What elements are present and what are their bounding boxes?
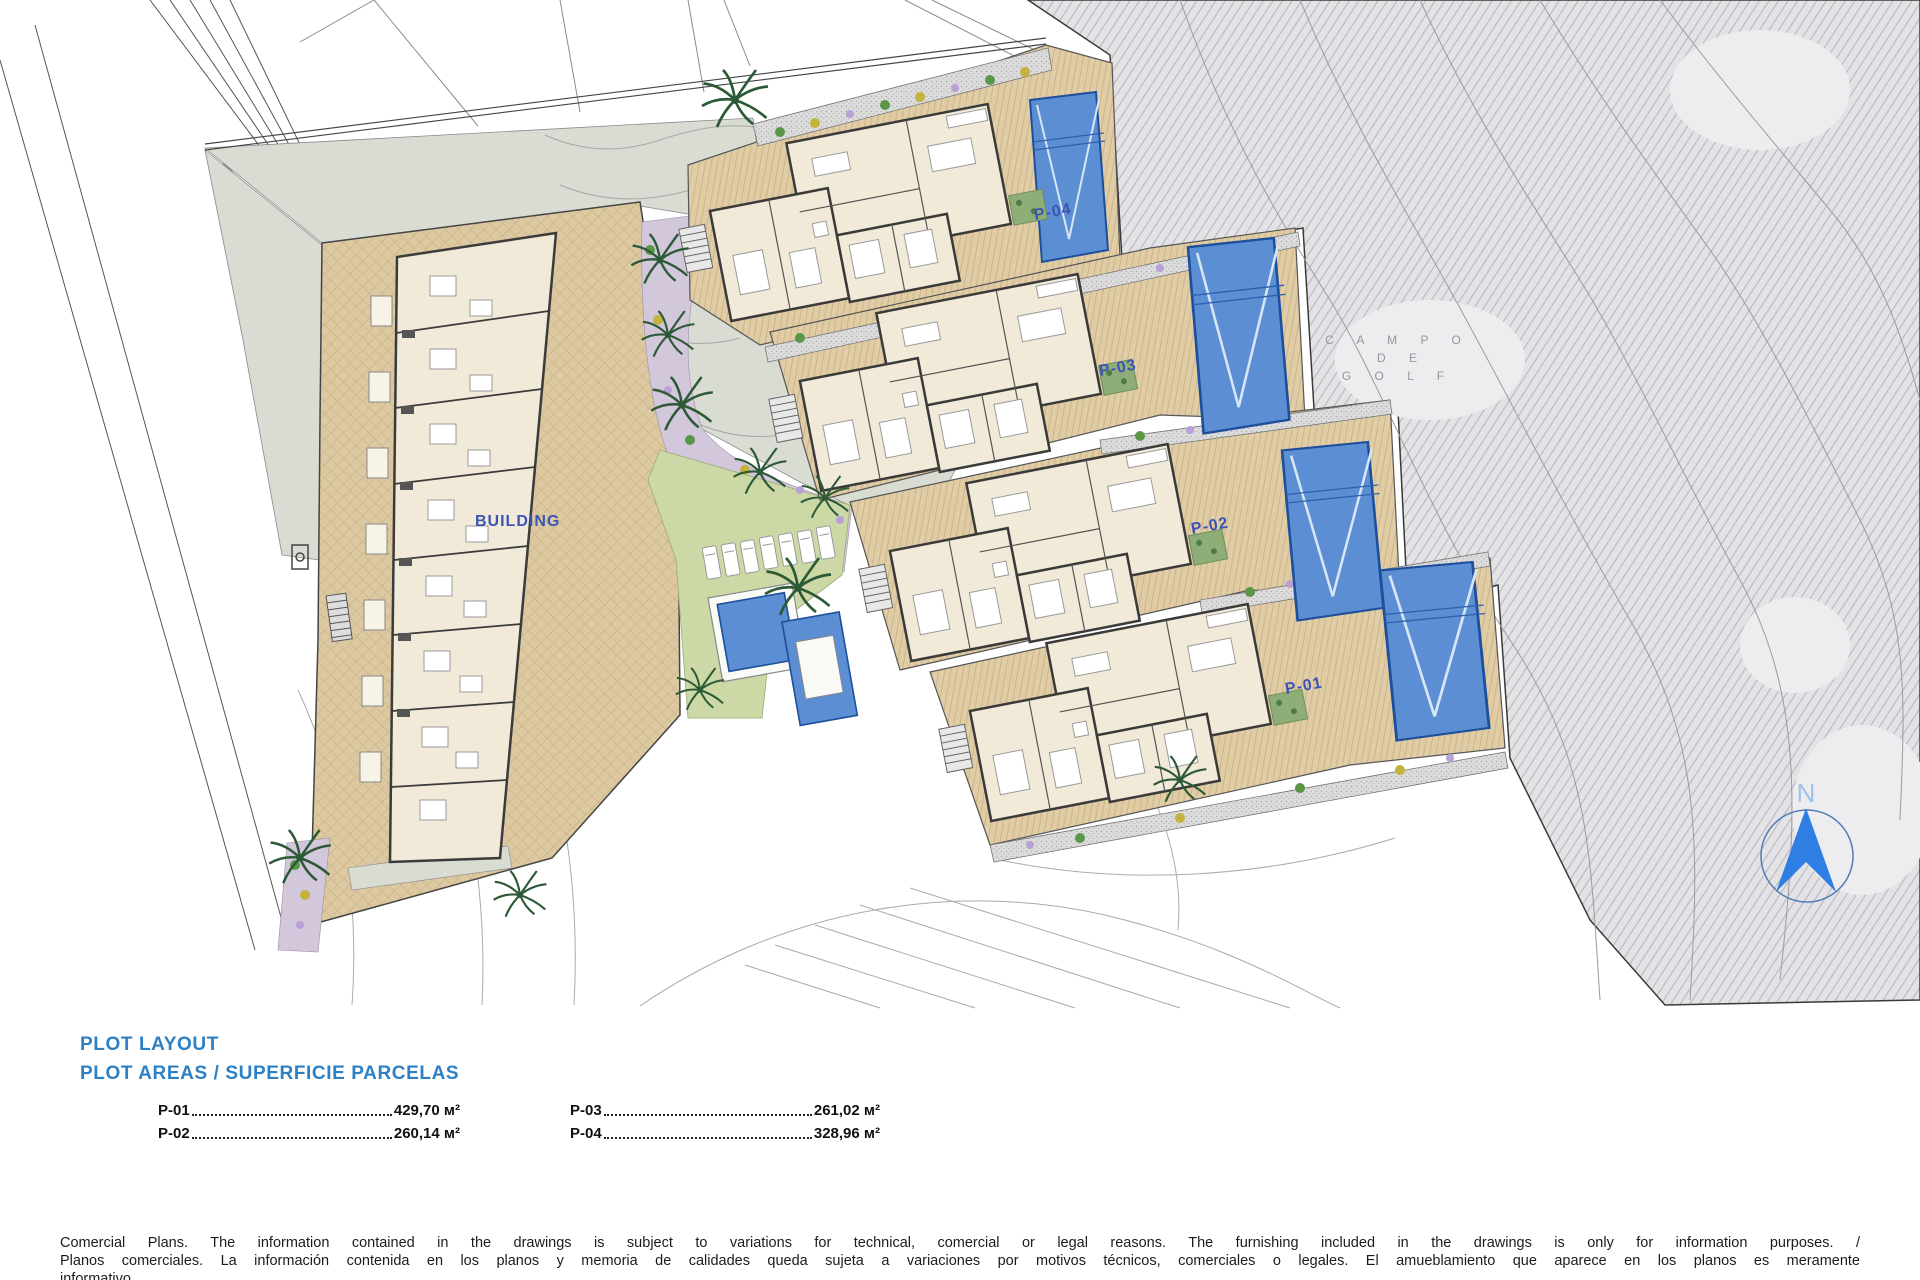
plot-area-value: 429,70 м² (394, 1102, 460, 1119)
page: C A M P O D E G O L F (0, 0, 1920, 1280)
disclaimer-line-es: Planos comerciales. La información conte… (60, 1252, 1860, 1270)
plot-area-row-p01: P-01 429,70 м² (158, 1102, 460, 1119)
plot-areas-title: PLOT AREAS / SUPERFICIE PARCELAS (80, 1059, 880, 1088)
plot-area-row-p03: P-03 261,02 м² (570, 1102, 880, 1119)
building-parcel (292, 202, 680, 925)
disclaimer-line-en: Comercial Plans. The information contain… (60, 1234, 1860, 1252)
site-plan: C A M P O D E G O L F (0, 0, 1920, 1010)
plot-area-name: P-03 (570, 1102, 602, 1119)
plot-area-row-p04: P-04 328,96 м² (570, 1125, 880, 1142)
plot-areas-table: P-01 429,70 м² P-02 260,14 м² P-03 261,0… (158, 1102, 880, 1142)
plot-area-value: 328,96 м² (814, 1125, 880, 1142)
plot-area-row-p02: P-02 260,14 м² (158, 1125, 460, 1142)
plot-legend: PLOT LAYOUT PLOT AREAS / SUPERFICIE PARC… (80, 1030, 880, 1142)
plot-area-value: 261,02 м² (814, 1102, 880, 1119)
north-label: N (1797, 778, 1816, 808)
golf-label-line2: D E (1377, 351, 1427, 365)
golf-label-line3: G O L F (1342, 369, 1454, 383)
disclaimer-line-3: informativo. (60, 1270, 1860, 1280)
communal-pool-2 (782, 612, 857, 725)
dotted-leader (604, 1137, 812, 1139)
plot-layout-title: PLOT LAYOUT (80, 1030, 880, 1059)
disclaimer: Comercial Plans. The information contain… (60, 1234, 1860, 1280)
plot-area-name: P-04 (570, 1125, 602, 1142)
plot-area-value: 260,14 м² (394, 1125, 460, 1142)
dotted-leader (604, 1114, 812, 1116)
building-label: BUILDING (475, 513, 560, 530)
plot-area-name: P-01 (158, 1102, 190, 1119)
golf-label-line1: C A M P O (1325, 333, 1471, 347)
dotted-leader (192, 1114, 392, 1116)
plot-area-name: P-02 (158, 1125, 190, 1142)
dotted-leader (192, 1137, 392, 1139)
